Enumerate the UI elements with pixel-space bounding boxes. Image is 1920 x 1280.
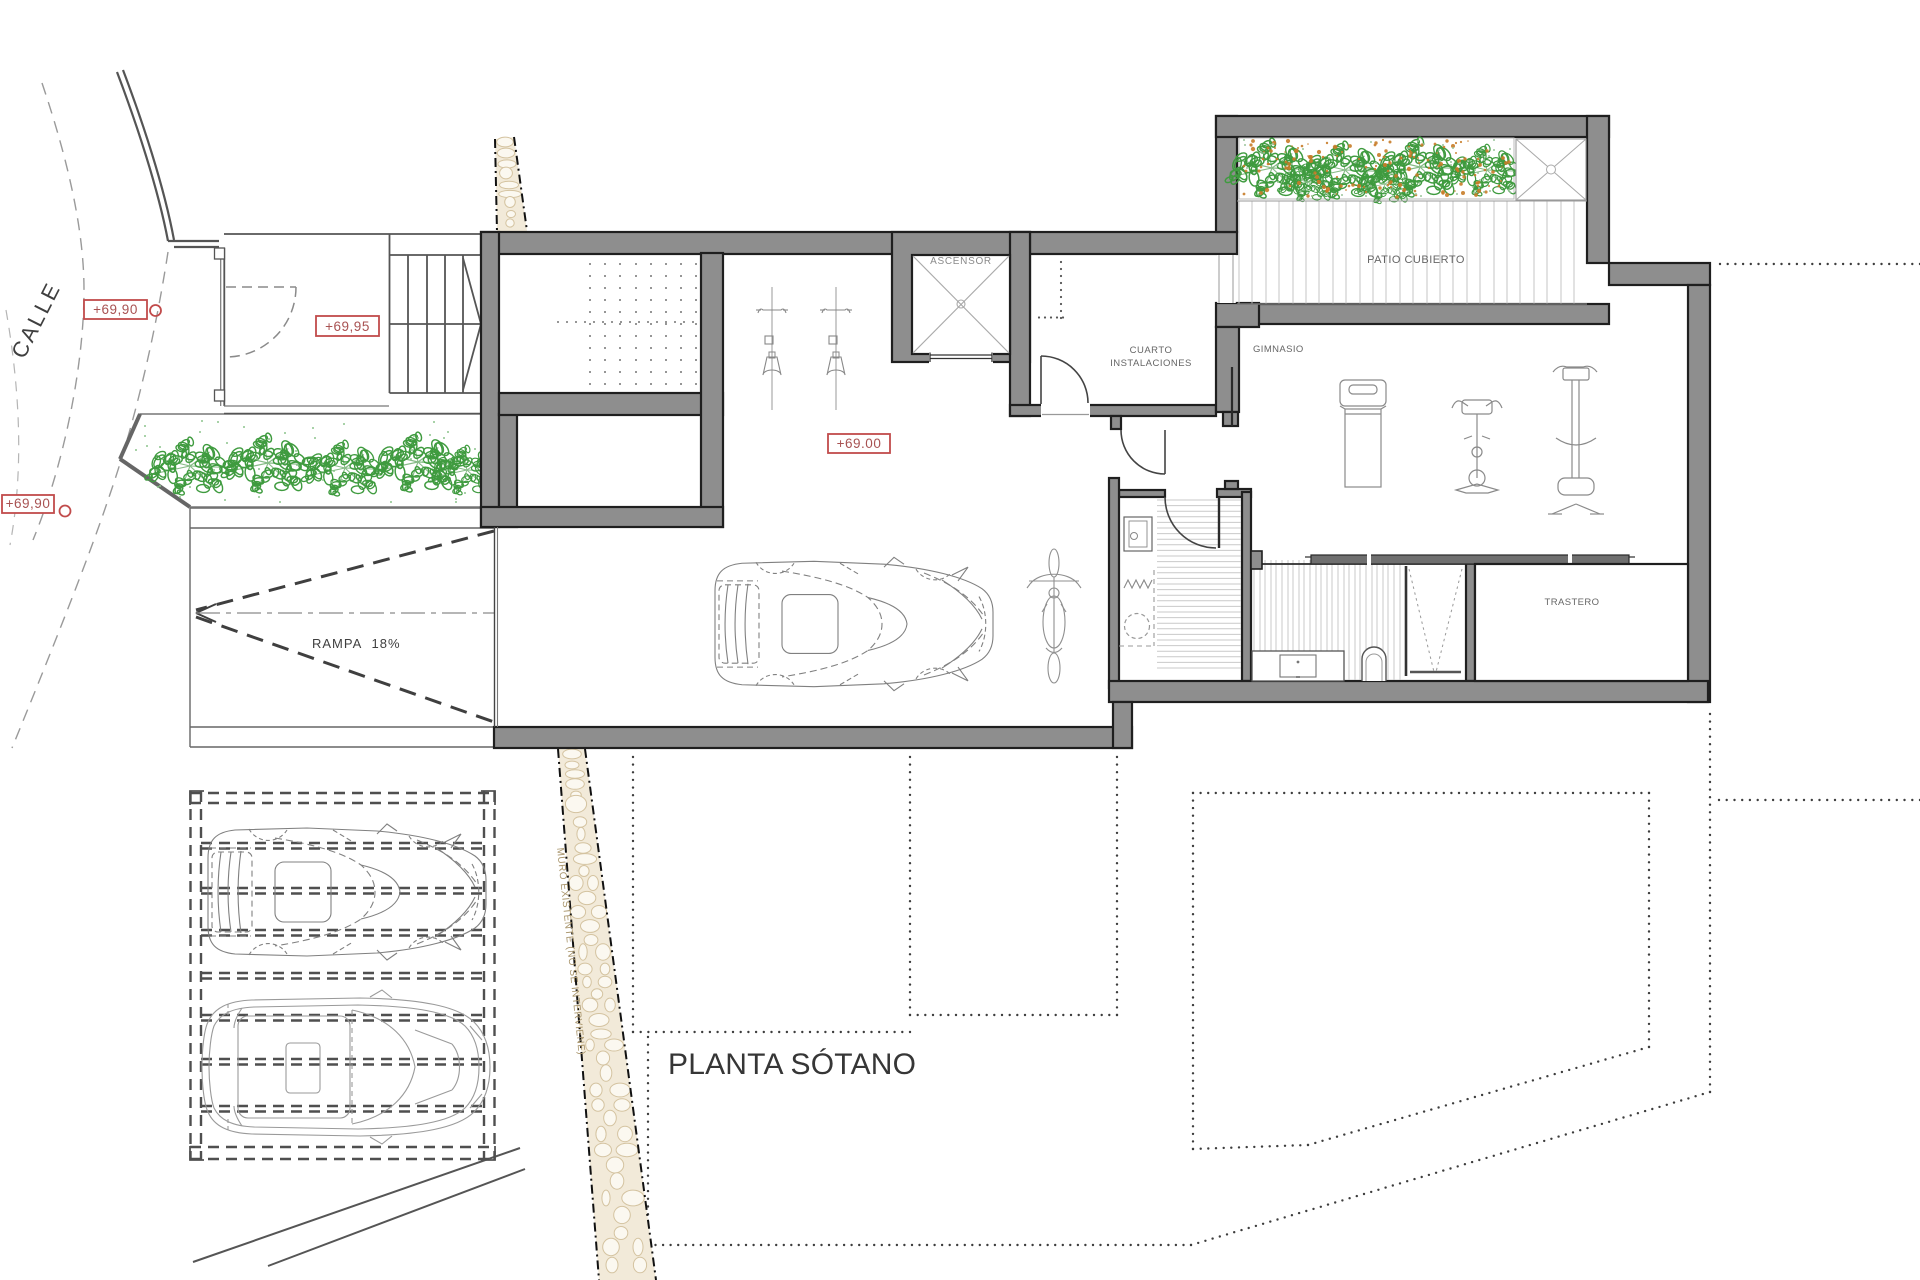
svg-text:TRASTERO: TRASTERO — [1545, 597, 1600, 608]
svg-text:+69,90: +69,90 — [6, 496, 51, 511]
svg-text:ASCENSOR: ASCENSOR — [930, 256, 992, 267]
svg-text:+69,90: +69,90 — [93, 302, 138, 317]
svg-text:PATIO CUBIERTO: PATIO CUBIERTO — [1367, 254, 1465, 266]
svg-text:INSTALACIONES: INSTALACIONES — [1110, 358, 1192, 369]
svg-text:CUARTO: CUARTO — [1130, 345, 1173, 356]
svg-text:PLANTA SÓTANO: PLANTA SÓTANO — [668, 1048, 916, 1081]
svg-text:GIMNASIO: GIMNASIO — [1253, 344, 1304, 355]
svg-text:+69,95: +69,95 — [325, 319, 370, 334]
svg-text:RAMPA 18%: RAMPA 18% — [312, 636, 401, 651]
svg-text:+69.00: +69.00 — [837, 436, 882, 451]
